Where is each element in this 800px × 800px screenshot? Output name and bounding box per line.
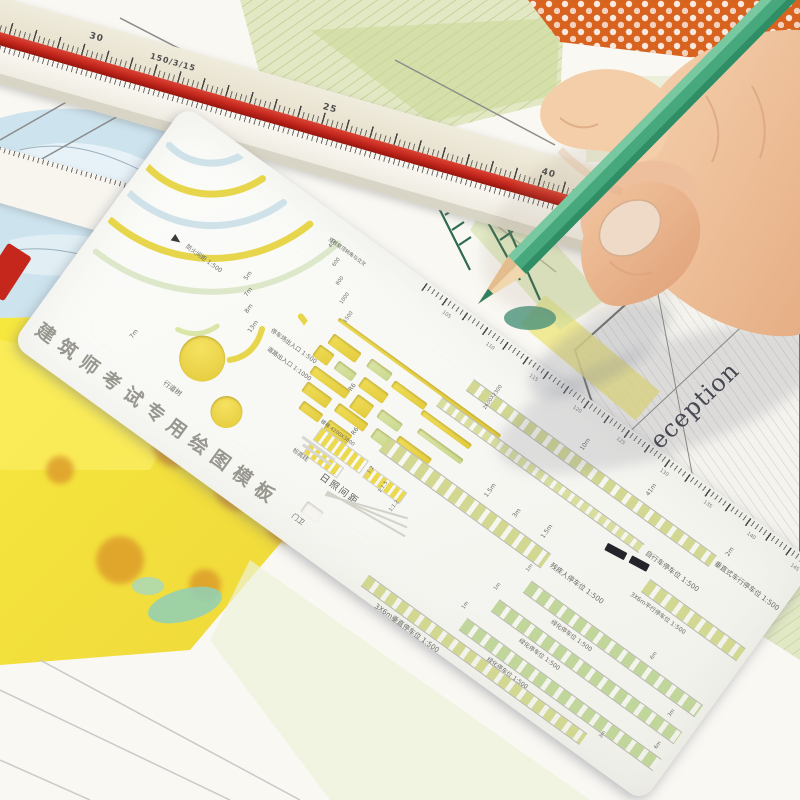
hand-and-pencil [0,0,800,800]
photo-stage: 30 150/3/15 25 40 75 Pool Reception [0,0,800,800]
